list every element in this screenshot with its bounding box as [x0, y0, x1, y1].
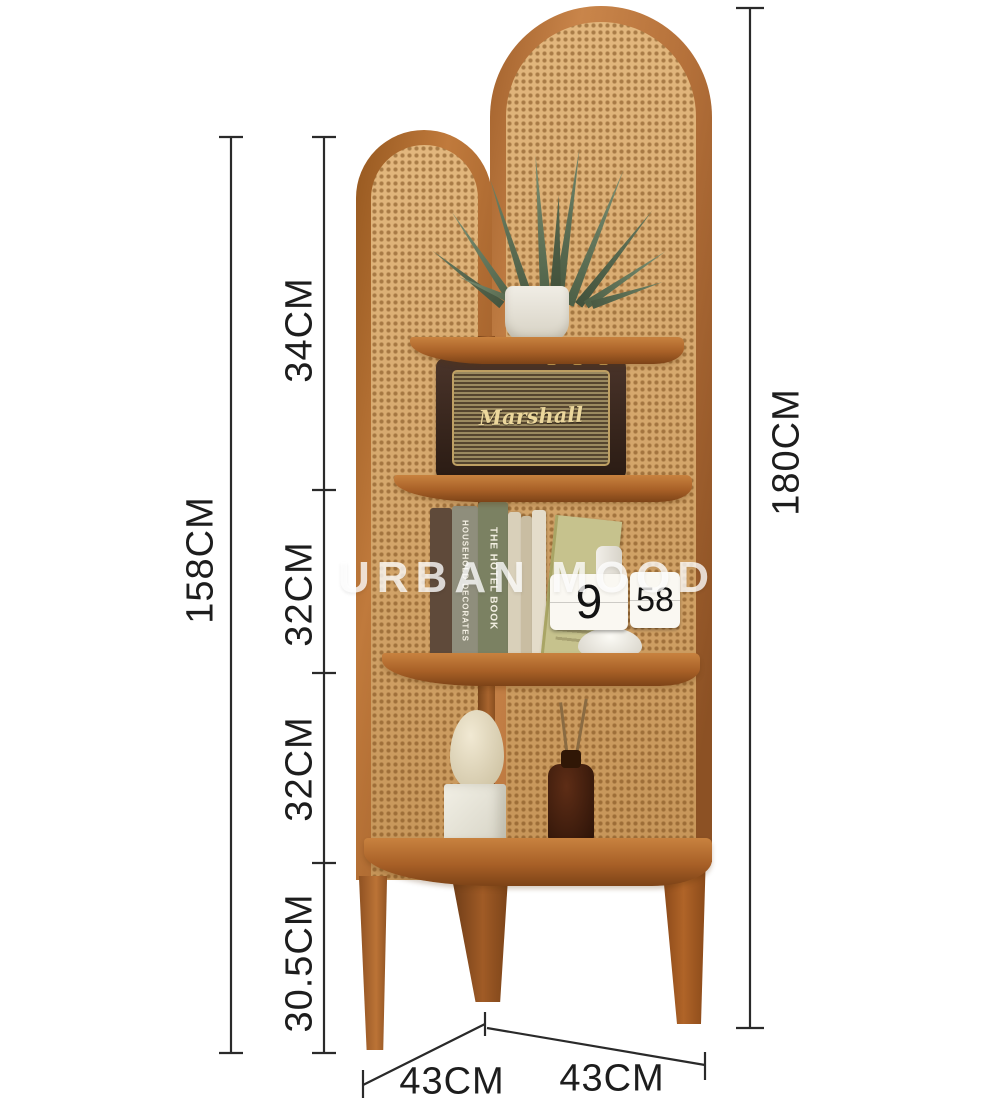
- dimension-lines: [0, 0, 1003, 1111]
- product-dimension-image: Marshall HOUSEHOLD DECORATES THE HOTEL B…: [0, 0, 1003, 1111]
- dim-label-left-total: 158CM: [180, 496, 223, 624]
- dim-label-depth-right: 43CM: [559, 1058, 664, 1101]
- dim-label-segment-32a: 32CM: [279, 541, 322, 646]
- dim-label-segment-32b: 32CM: [279, 716, 322, 821]
- dim-label-segment-34: 34CM: [279, 277, 322, 382]
- dim-label-right-total: 180CM: [766, 388, 809, 516]
- dim-label-segment-30-5: 30.5CM: [279, 893, 322, 1032]
- dim-label-depth-left: 43CM: [399, 1061, 504, 1104]
